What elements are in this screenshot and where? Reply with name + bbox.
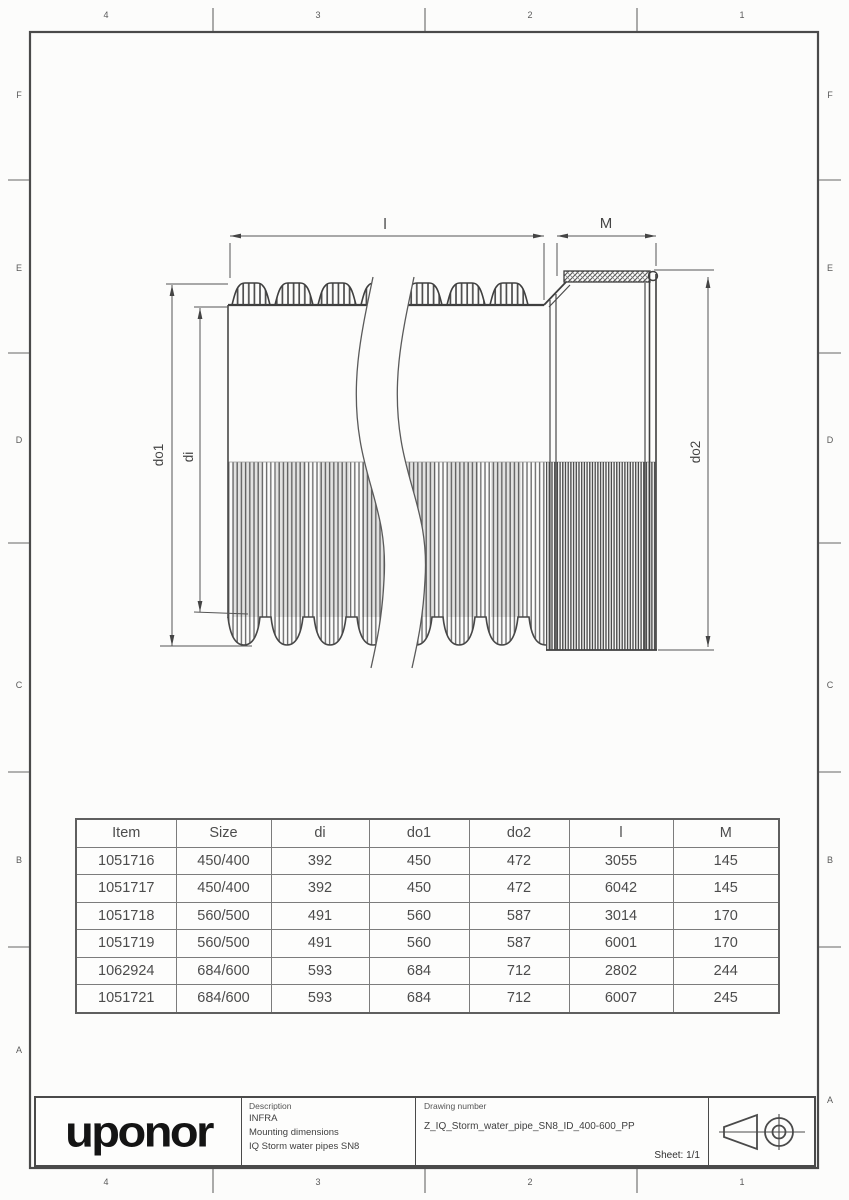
table-cell: 450/400: [176, 875, 271, 903]
zone-row-label: E: [16, 263, 22, 273]
zone-col-label: 1: [739, 10, 744, 20]
table-header-row: Item Size di do1 do2 l M: [76, 819, 779, 847]
zone-row-label: D: [16, 435, 23, 445]
dim-label-do2: do2: [688, 441, 703, 464]
zone-row-label: B: [16, 855, 22, 865]
zone-col-label: 1: [739, 1177, 744, 1187]
table-row: 1062924 684/600 593 684 712 2802 244: [76, 957, 779, 985]
table-cell: 6007: [569, 985, 673, 1013]
table-cell: 587: [469, 930, 569, 958]
column-header: do1: [369, 819, 469, 847]
description-line: INFRA: [249, 1112, 408, 1126]
table-cell: 684: [369, 985, 469, 1013]
table-cell: 472: [469, 847, 569, 875]
zone-row-label: B: [827, 855, 833, 865]
table-cell: 593: [271, 985, 369, 1013]
drawing-number-label: Drawing number: [424, 1101, 700, 1112]
table-cell: 392: [271, 847, 369, 875]
column-header: do2: [469, 819, 569, 847]
table-cell: 1051716: [76, 847, 176, 875]
table-row: 1051721 684/600 593 684 712 6007 245: [76, 985, 779, 1013]
table-cell: 560: [369, 902, 469, 930]
pipe-socket: [544, 271, 658, 650]
dim-label-do1: do1: [151, 444, 166, 467]
table-cell: 244: [673, 957, 779, 985]
dim-label-l: l: [383, 216, 386, 233]
zone-row-label: F: [16, 90, 22, 100]
zone-row-label: A: [16, 1045, 22, 1055]
column-header: Item: [76, 819, 176, 847]
table-cell: 593: [271, 957, 369, 985]
table-cell: 6042: [569, 875, 673, 903]
zone-row-label: A: [827, 1095, 833, 1105]
zone-col-label: 3: [315, 10, 320, 20]
table-cell: 145: [673, 847, 779, 875]
table-cell: 1062924: [76, 957, 176, 985]
drawing-sheet: l M do1 di do2 4 3 2 1 4 3 2 1 F E D C B…: [0, 0, 849, 1200]
table-cell: 392: [271, 875, 369, 903]
table-cell: 684/600: [176, 957, 271, 985]
zone-row-label: D: [827, 435, 834, 445]
pipe-drawing: l M do1 di do2: [151, 215, 714, 668]
table-cell: 145: [673, 875, 779, 903]
table-cell: 6001: [569, 930, 673, 958]
zone-col-label: 2: [527, 10, 532, 20]
zone-row-label: C: [827, 680, 834, 690]
table-cell: 1051717: [76, 875, 176, 903]
drawing-number-cell: Drawing number Z_IQ_Storm_water_pipe_SN8…: [416, 1098, 709, 1165]
table-cell: 712: [469, 985, 569, 1013]
dim-label-di: di: [181, 452, 196, 463]
table-cell: 560: [369, 930, 469, 958]
dim-label-m: M: [600, 215, 613, 232]
dimension-do2: [654, 270, 714, 650]
logo-text: uponor: [65, 1110, 212, 1153]
title-block: uponor Description INFRA Mounting dimens…: [34, 1096, 816, 1167]
table-row: 1051718 560/500 491 560 587 3014 170: [76, 902, 779, 930]
column-header: M: [673, 819, 779, 847]
table-cell: 245: [673, 985, 779, 1013]
dimension-m: [557, 234, 656, 276]
description-cell: Description INFRA Mounting dimensions IQ…: [242, 1098, 416, 1165]
table-cell: 560/500: [176, 930, 271, 958]
table-row: 1051717 450/400 392 450 472 6042 145: [76, 875, 779, 903]
zone-row-label: F: [827, 90, 833, 100]
drawing-number-value: Z_IQ_Storm_water_pipe_SN8_ID_400-600_PP: [424, 1121, 700, 1132]
table-cell: 450: [369, 875, 469, 903]
table-cell: 170: [673, 902, 779, 930]
drawing-linework: l M do1 di do2: [0, 0, 849, 1200]
table-cell: 170: [673, 930, 779, 958]
dimension-table: Item Size di do1 do2 l M 1051716 450/400…: [75, 818, 780, 1014]
table-cell: 491: [271, 902, 369, 930]
table-row: 1051716 450/400 392 450 472 3055 145: [76, 847, 779, 875]
table-row: 1051719 560/500 491 560 587 6001 170: [76, 930, 779, 958]
table-cell: 684/600: [176, 985, 271, 1013]
table-cell: 450/400: [176, 847, 271, 875]
zone-col-label: 4: [103, 10, 108, 20]
description-line: Mounting dimensions: [249, 1126, 408, 1140]
description-line: IQ Storm water pipes SN8: [249, 1140, 408, 1154]
sheet-number: Sheet: 1/1: [654, 1150, 700, 1161]
table-cell: 3055: [569, 847, 673, 875]
table-cell: 491: [271, 930, 369, 958]
table-cell: 472: [469, 875, 569, 903]
zone-row-label: C: [16, 680, 23, 690]
zone-col-label: 2: [527, 1177, 532, 1187]
column-header: l: [569, 819, 673, 847]
table-cell: 1051719: [76, 930, 176, 958]
zone-row-label: E: [827, 263, 833, 273]
first-angle-projection-icon: [717, 1108, 807, 1156]
socket-seal-band: [564, 271, 650, 282]
table-cell: 2802: [569, 957, 673, 985]
zone-col-label: 3: [315, 1177, 320, 1187]
table-cell: 3014: [569, 902, 673, 930]
table-cell: 1051718: [76, 902, 176, 930]
table-cell: 712: [469, 957, 569, 985]
socket-hatch: [546, 462, 656, 650]
company-logo: uponor: [36, 1098, 242, 1165]
column-header: Size: [176, 819, 271, 847]
table-cell: 684: [369, 957, 469, 985]
table-cell: 560/500: [176, 902, 271, 930]
projection-symbol-cell: [709, 1098, 814, 1165]
description-label: Description: [249, 1101, 408, 1112]
column-header: di: [271, 819, 369, 847]
table-cell: 1051721: [76, 985, 176, 1013]
table-cell: 450: [369, 847, 469, 875]
table-cell: 587: [469, 902, 569, 930]
zone-col-label: 4: [103, 1177, 108, 1187]
